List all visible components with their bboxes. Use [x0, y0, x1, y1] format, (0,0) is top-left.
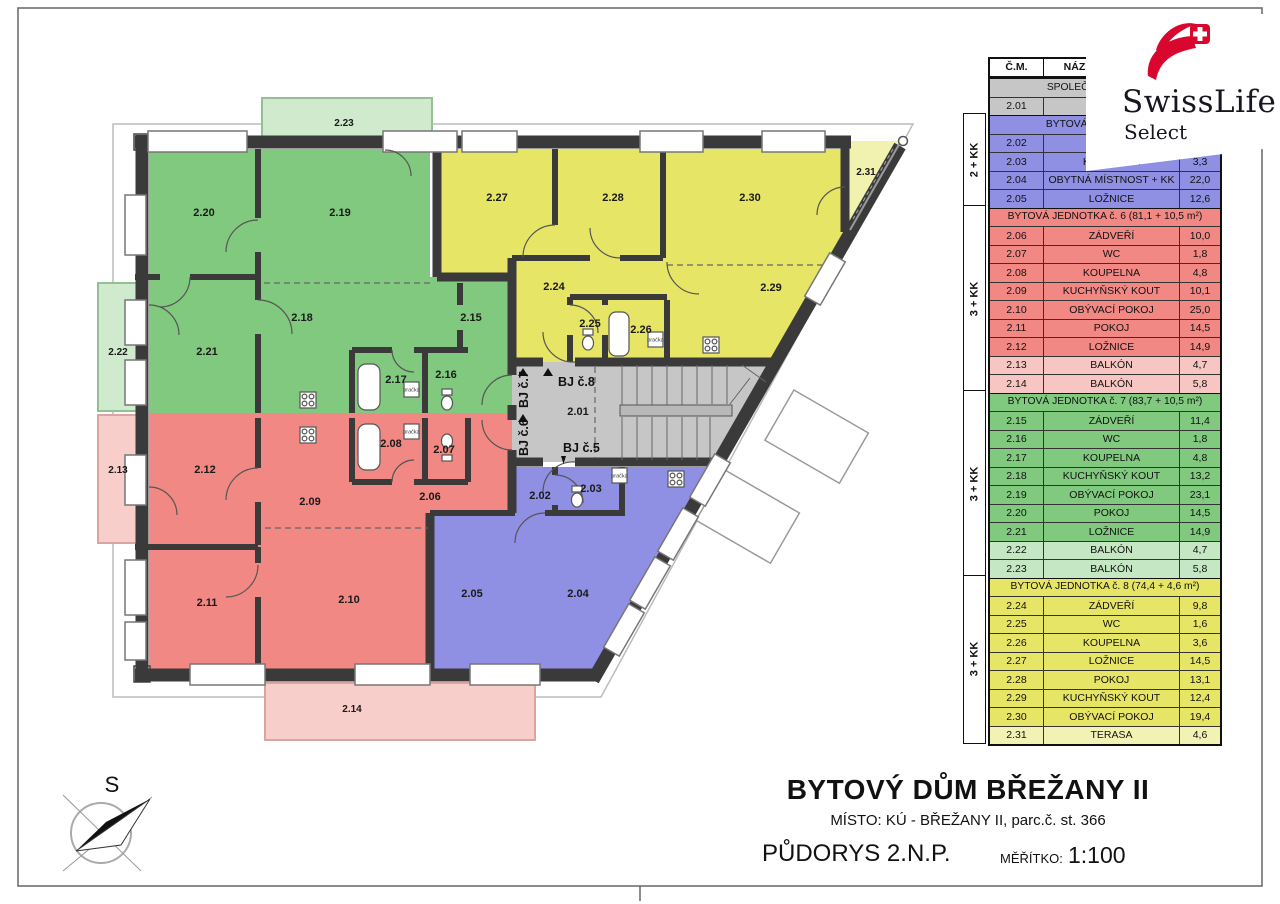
washer-label: pračka — [403, 430, 420, 436]
room-label: 2.18 — [291, 312, 312, 324]
legend-cell-name: BALKÓN — [1044, 375, 1180, 393]
legend-cell-area: 14,5 — [1180, 653, 1220, 671]
legend-cell-name: POKOJ — [1044, 320, 1180, 338]
bathtub-icon — [358, 364, 380, 410]
legend-row: 2.27LOŽNICE14,5 — [990, 652, 1220, 671]
room-label: 2.13 — [108, 465, 128, 476]
legend-row: 2.18KUCHYŇSKÝ KOUT13,2 — [990, 467, 1220, 486]
room-label: 2.12 — [194, 464, 215, 476]
room-label: 2.22 — [108, 347, 128, 358]
legend-cell-area: 10,1 — [1180, 283, 1220, 301]
legend-cell-area: 4,8 — [1180, 449, 1220, 467]
legend-cell-area: 1,8 — [1180, 246, 1220, 264]
legend-cell-code: 2.09 — [990, 283, 1044, 301]
legend-cell-code: 2.05 — [990, 190, 1044, 208]
entrance-label: BJ č.5 — [563, 441, 600, 455]
legend-cell-area: 4,6 — [1180, 727, 1220, 745]
legend-cell-name: TERASA — [1044, 727, 1180, 745]
legend-row: 2.10OBÝVACÍ POKOJ25,0 — [990, 300, 1220, 319]
drawing-page: pračka pračka pračka pračka 2.01 2.02 2.… — [0, 0, 1280, 904]
legend-cell-area: 13,2 — [1180, 468, 1220, 486]
room-label: 2.16 — [435, 369, 456, 381]
legend-cell-name: KOUPELNA — [1044, 634, 1180, 652]
room-label: 2.28 — [602, 192, 623, 204]
washer-label: pračka — [647, 338, 664, 344]
room-label: 2.21 — [196, 346, 217, 358]
legend-cell-area: 5,8 — [1180, 375, 1220, 393]
legend-row: 2.08KOUPELNA4,8 — [990, 263, 1220, 282]
legend-cell-code: 2.08 — [990, 264, 1044, 282]
scale-label: MĚŘÍTKO: — [1000, 851, 1063, 866]
legend-cell-name: OBÝVACÍ POKOJ — [1044, 301, 1180, 319]
unit-type-label: 2 + KK — [963, 113, 986, 208]
legend-cell-code: 2.16 — [990, 431, 1044, 449]
legend-cell-code: 2.20 — [990, 505, 1044, 523]
legend-row: 2.29KUCHYŇSKÝ KOUT12,4 — [990, 689, 1220, 708]
room-label: 2.10 — [338, 594, 359, 606]
room-label: 2.29 — [760, 282, 781, 294]
room-label: 2.17 — [385, 374, 406, 386]
legend-cell-code: 2.10 — [990, 301, 1044, 319]
compass: S — [63, 772, 152, 871]
legend-cell-code: 2.03 — [990, 153, 1044, 171]
legend-cell-name: WC — [1044, 616, 1180, 634]
legend-section-header: BYTOVÁ JEDNOTKA č. 6 (81,1 + 10,5 m²) — [990, 208, 1220, 227]
unit-type-label: 3 + KK — [963, 205, 986, 392]
unit-type-label: 3 + KK — [963, 575, 986, 744]
room-label: 2.11 — [197, 597, 218, 609]
stove-icon — [300, 427, 316, 443]
room-label: 2.24 — [543, 281, 565, 293]
legend-cell-area: 3,6 — [1180, 634, 1220, 652]
legend-cell-code: 2.01 — [990, 98, 1044, 116]
legend-cell-name: LOŽNICE — [1044, 653, 1180, 671]
room-label: 2.19 — [329, 207, 350, 219]
legend-row: 2.28POKOJ13,1 — [990, 670, 1220, 689]
legend-cell-code: 2.02 — [990, 135, 1044, 153]
entrance-label: BJ č.8 — [558, 375, 595, 389]
legend-row: 2.13BALKÓN4,7 — [990, 356, 1220, 375]
legend-row: 2.22BALKÓN4,7 — [990, 541, 1220, 560]
room-label: 2.06 — [419, 491, 440, 503]
room-label: 2.02 — [529, 490, 550, 502]
room-label: 2.20 — [193, 207, 214, 219]
room-label: 2.14 — [342, 704, 362, 715]
legend-row: 2.24ZÁDVEŘÍ9,8 — [990, 596, 1220, 615]
legend-row: 2.23BALKÓN5,8 — [990, 559, 1220, 578]
legend-cell-area: 4,8 — [1180, 264, 1220, 282]
room-label: 2.01 — [567, 406, 588, 418]
legend-cell-name: KUCHYŇSKÝ KOUT — [1044, 690, 1180, 708]
scale-value: 1:100 — [1068, 842, 1126, 869]
room-label: 2.07 — [433, 444, 454, 456]
legend-cell-code: 2.18 — [990, 468, 1044, 486]
legend-cell-code: 2.11 — [990, 320, 1044, 338]
room-label: 2.27 — [486, 192, 507, 204]
legend-row: 2.04OBYTNÁ MÍSTNOST + KK22,0 — [990, 171, 1220, 190]
legend-cell-name: LOŽNICE — [1044, 338, 1180, 356]
washer-label: pračka — [611, 474, 628, 480]
legend-cell-area: 22,0 — [1180, 172, 1220, 190]
legend-section-header: BYTOVÁ JEDNOTKA č. 7 (83,7 + 10,5 m²) — [990, 393, 1220, 412]
legend-cell-area: 19,4 — [1180, 708, 1220, 726]
legend-row: 2.19OBÝVACÍ POKOJ23,1 — [990, 485, 1220, 504]
room-label: 2.23 — [334, 118, 354, 129]
legend-cell-code: 2.22 — [990, 542, 1044, 560]
legend-cell-name: KOUPELNA — [1044, 264, 1180, 282]
legend-cell-area: 4,7 — [1180, 357, 1220, 375]
legend-cell-name: KUCHYŇSKÝ KOUT — [1044, 283, 1180, 301]
legend-row: 2.21LOŽNICE14,9 — [990, 522, 1220, 541]
legend-cell-area: 14,5 — [1180, 320, 1220, 338]
legend-row: 2.26KOUPELNA3,6 — [990, 633, 1220, 652]
legend-cell-code: 2.28 — [990, 671, 1044, 689]
entrance-label: BJ č.7 — [517, 371, 531, 408]
legend-cell-name: BALKÓN — [1044, 357, 1180, 375]
legend-cell-name: BALKÓN — [1044, 542, 1180, 560]
legend-cell-name: LOŽNICE — [1044, 190, 1180, 208]
legend-cell-name: OBÝVACÍ POKOJ — [1044, 708, 1180, 726]
bathtub-icon — [609, 312, 629, 356]
legend-row: 2.20POKOJ14,5 — [990, 504, 1220, 523]
legend-cell-code: 2.13 — [990, 357, 1044, 375]
legend-cell-code: 2.12 — [990, 338, 1044, 356]
page-title: BYTOVÝ DŮM BŘEŽANY II — [656, 774, 1280, 806]
legend-cell-name: ZÁDVEŘÍ — [1044, 227, 1180, 245]
stove-icon — [668, 471, 684, 487]
room-label: 2.09 — [299, 496, 320, 508]
legend-cell-name: KOUPELNA — [1044, 449, 1180, 467]
legend-cell-code: 2.21 — [990, 523, 1044, 541]
legend-cell-name: KUCHYŇSKÝ KOUT — [1044, 468, 1180, 486]
legend-row: 2.16WC1,8 — [990, 430, 1220, 449]
legend-cell-name: ZÁDVEŘÍ — [1044, 597, 1180, 615]
legend-cell-name: WC — [1044, 246, 1180, 264]
entrance-label: BJ č.6 — [517, 419, 531, 456]
logo-sub-text: Select — [1124, 120, 1187, 144]
legend-row: 2.30OBÝVACÍ POKOJ19,4 — [990, 707, 1220, 726]
legend-cell-name: OBYTNÁ MÍSTNOST + KK — [1044, 172, 1180, 190]
legend-cell-area: 1,6 — [1180, 616, 1220, 634]
bathtub-icon — [358, 424, 380, 470]
legend-cell-name: POKOJ — [1044, 671, 1180, 689]
legend-cell-code: 2.06 — [990, 227, 1044, 245]
legend-cell-area: 14,9 — [1180, 523, 1220, 541]
legend-cell-code: 2.19 — [990, 486, 1044, 504]
legend-cell-area: 14,9 — [1180, 338, 1220, 356]
legend-cell-code: 2.26 — [990, 634, 1044, 652]
legend-row: 2.31TERASA4,6 — [990, 726, 1220, 745]
stove-icon — [300, 392, 316, 408]
room-label: 2.26 — [630, 324, 651, 336]
room-label: 2.15 — [460, 312, 481, 324]
legend-cell-code: 2.23 — [990, 560, 1044, 578]
legend-cell-area: 1,8 — [1180, 431, 1220, 449]
legend-cell-code: 2.17 — [990, 449, 1044, 467]
room-label: 2.04 — [567, 588, 589, 600]
legend-cell-area: 12,6 — [1180, 190, 1220, 208]
legend-header-code: Č.M. — [990, 59, 1044, 76]
legend-cell-area: 11,4 — [1180, 412, 1220, 430]
legend-cell-code: 2.15 — [990, 412, 1044, 430]
room-label: 2.05 — [461, 588, 482, 600]
legend-row: 2.11POKOJ14,5 — [990, 319, 1220, 338]
legend-section-header: BYTOVÁ JEDNOTKA č. 8 (74,4 + 4,6 m²) — [990, 578, 1220, 597]
legend-cell-name: LOŽNICE — [1044, 523, 1180, 541]
legend-cell-code: 2.25 — [990, 616, 1044, 634]
legend-cell-code: 2.31 — [990, 727, 1044, 745]
legend-row: 2.14BALKÓN5,8 — [990, 374, 1220, 393]
legend-cell-area: 10,0 — [1180, 227, 1220, 245]
swisslife-swoosh-icon — [1138, 18, 1218, 84]
legend-row: 2.07WC1,8 — [990, 245, 1220, 264]
legend-row: 2.17KOUPELNA4,8 — [990, 448, 1220, 467]
legend-cell-name: BALKÓN — [1044, 560, 1180, 578]
legend-cell-code: 2.04 — [990, 172, 1044, 190]
legend-cell-area: 13,1 — [1180, 671, 1220, 689]
legend-cell-name: WC — [1044, 431, 1180, 449]
legend-row: 2.15ZÁDVEŘÍ11,4 — [990, 411, 1220, 430]
washer-label: pračka — [403, 388, 420, 394]
room-label: 2.30 — [739, 192, 760, 204]
legend-cell-area: 5,8 — [1180, 560, 1220, 578]
room-label: 2.03 — [580, 483, 601, 495]
drawing-name: PŮDORYS 2.N.P. — [762, 840, 951, 868]
legend-row: 2.06ZÁDVEŘÍ10,0 — [990, 226, 1220, 245]
legend-cell-name: POKOJ — [1044, 505, 1180, 523]
legend-row: 2.25WC1,6 — [990, 615, 1220, 634]
legend-cell-code: 2.07 — [990, 246, 1044, 264]
compass-north-label: S — [105, 772, 120, 797]
toilet-icon — [583, 329, 594, 350]
legend-row: 2.05LOŽNICE12,6 — [990, 189, 1220, 208]
room-label: 2.08 — [380, 438, 401, 450]
stove-icon — [703, 337, 719, 353]
legend-cell-name: OBÝVACÍ POKOJ — [1044, 486, 1180, 504]
legend-cell-name: ZÁDVEŘÍ — [1044, 412, 1180, 430]
unit-type-label: 3 + KK — [963, 390, 986, 577]
legend-cell-code: 2.30 — [990, 708, 1044, 726]
legend-cell-code: 2.27 — [990, 653, 1044, 671]
legend-cell-code: 2.29 — [990, 690, 1044, 708]
legend-cell-area: 23,1 — [1180, 486, 1220, 504]
room-label: 2.25 — [579, 318, 600, 330]
legend-cell-area: 25,0 — [1180, 301, 1220, 319]
legend-cell-area: 4,7 — [1180, 542, 1220, 560]
logo-brand-text: SwissLife — [1122, 84, 1276, 120]
legend-cell-area: 14,5 — [1180, 505, 1220, 523]
legend-row: 2.12LOŽNICE14,9 — [990, 337, 1220, 356]
toilet-icon — [442, 389, 453, 410]
legend-cell-code: 2.24 — [990, 597, 1044, 615]
legend-cell-area: 12,4 — [1180, 690, 1220, 708]
room-label: 2.31 — [856, 167, 876, 178]
legend-row: 2.09KUCHYŇSKÝ KOUT10,1 — [990, 282, 1220, 301]
page-subtitle: MÍSTO: KÚ - BŘEŽANY II, parc.č. st. 366 — [656, 812, 1280, 829]
legend-cell-code: 2.14 — [990, 375, 1044, 393]
legend-cell-area: 9,8 — [1180, 597, 1220, 615]
